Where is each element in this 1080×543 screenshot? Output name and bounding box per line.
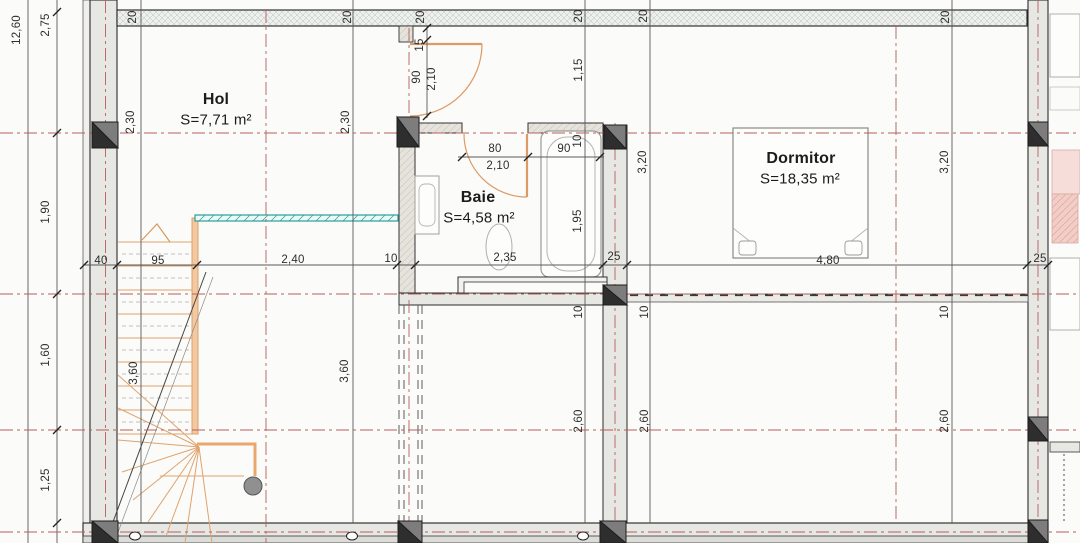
column <box>1028 417 1048 441</box>
column <box>1028 122 1048 146</box>
column <box>92 122 118 148</box>
dim-beam-b4: 20 <box>573 9 585 22</box>
column <box>604 125 626 149</box>
dim-hol-door-height: 2,10 <box>426 67 438 90</box>
newel-post <box>244 477 262 495</box>
dim-chain-480: 4,80 <box>816 255 839 267</box>
column <box>603 285 627 305</box>
dim-grid-320a: 3,20 <box>637 150 649 173</box>
room-area-hol: S=7,71 m² <box>180 112 251 129</box>
dim-chain-25b: 25 <box>1033 253 1046 265</box>
stair-landing-edge <box>197 444 255 476</box>
room-label-baie: Baie <box>461 189 496 207</box>
adjacent-rooms-annex <box>1050 14 1080 521</box>
bottom-wall <box>83 523 1048 543</box>
column <box>397 117 419 147</box>
column <box>92 521 118 543</box>
dim-beam-b6: 20 <box>940 10 952 23</box>
dim-grid-260c: 2,60 <box>939 409 951 432</box>
dim-left-s3: 1,60 <box>40 343 52 366</box>
floor-plan-canvas: Hol S=7,71 m² Baie S=4,58 m² Dormitor S=… <box>0 0 1080 543</box>
room-area-baie: S=4,58 m² <box>443 210 514 227</box>
dim-grid-10b: 10 <box>639 305 651 318</box>
column <box>1028 520 1048 543</box>
dim-chain-95: 95 <box>151 255 164 267</box>
dim-grid-195: 1,95 <box>572 209 584 232</box>
dormitor-south-partition <box>627 294 1028 302</box>
dim-baie-door-width: 80 <box>488 143 501 155</box>
room-label-dormitor: Dormitor <box>766 150 835 168</box>
dim-left-s2: 1,90 <box>40 200 52 223</box>
dim-beam-b3: 20 <box>415 10 427 23</box>
stair-direction-arrow <box>142 224 170 242</box>
dim-grid-360b: 3,60 <box>339 359 351 382</box>
dim-chain-240: 2,40 <box>281 254 304 266</box>
dim-beam-b2: 20 <box>342 10 354 23</box>
dim-left-s1: 2,75 <box>40 13 52 36</box>
dim-grid-10a: 10 <box>573 305 585 318</box>
dim-beam-b5: 20 <box>638 9 650 22</box>
void-projection-dashed <box>399 305 422 521</box>
dim-grid-360a: 3,60 <box>128 361 140 384</box>
dim-chain-10: 10 <box>384 253 397 265</box>
bed <box>733 128 868 258</box>
top-beam <box>117 10 1027 26</box>
room-area-dormitor: S=18,35 m² <box>760 171 840 188</box>
dim-total-height: 12,60 <box>11 15 23 45</box>
dim-baie-door-height: 2,10 <box>486 160 509 172</box>
dim-grid-320b: 3,20 <box>939 150 951 173</box>
column <box>600 521 626 543</box>
dim-beam-b1: 20 <box>127 10 139 23</box>
floor-plan-drawing <box>0 0 1080 543</box>
dim-left-s4: 1,25 <box>40 468 52 491</box>
railing <box>195 215 398 221</box>
column <box>398 521 422 543</box>
dim-grid-230a: 2,30 <box>125 110 137 133</box>
dim-baie-wall: 10 <box>572 134 584 147</box>
bathtub <box>541 131 601 277</box>
dim-grid-230b: 2,30 <box>340 110 352 133</box>
left-wall <box>83 0 117 543</box>
dim-chain-25a: 25 <box>607 251 620 263</box>
dim-grid-260a: 2,60 <box>573 409 585 432</box>
dim-hol-door-offset: 15 <box>414 38 426 51</box>
axis-centerlines <box>0 0 1080 543</box>
dim-chain-235: 2,35 <box>493 252 516 264</box>
dim-grid-260b: 2,60 <box>639 409 651 432</box>
room-label-hol: Hol <box>203 91 229 109</box>
dim-chain-40: 40 <box>94 255 107 267</box>
dim-grid-10c: 10 <box>939 305 951 318</box>
dim-baie-tub-width: 90 <box>557 143 570 155</box>
sink <box>415 176 439 234</box>
dim-hol-door-width: 90 <box>411 70 423 83</box>
dim-grid-115: 1,15 <box>573 58 585 81</box>
